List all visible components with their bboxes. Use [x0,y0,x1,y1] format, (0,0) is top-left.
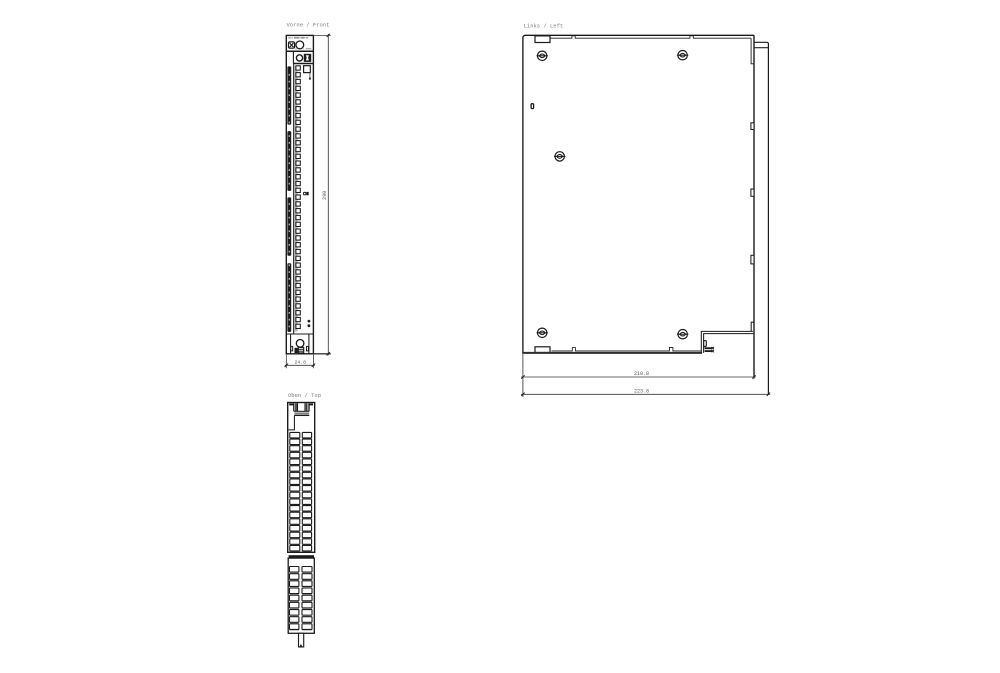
svg-text:290: 290 [322,191,328,200]
svg-text:24.8: 24.8 [295,360,307,366]
svg-text:Vorne / Front: Vorne / Front [287,21,330,28]
svg-text:223.8: 223.8 [634,389,649,395]
svg-text:Oben / Top: Oben / Top [288,392,321,399]
svg-text:Links / Left: Links / Left [524,23,564,30]
svg-text:210.8: 210.8 [634,371,649,377]
